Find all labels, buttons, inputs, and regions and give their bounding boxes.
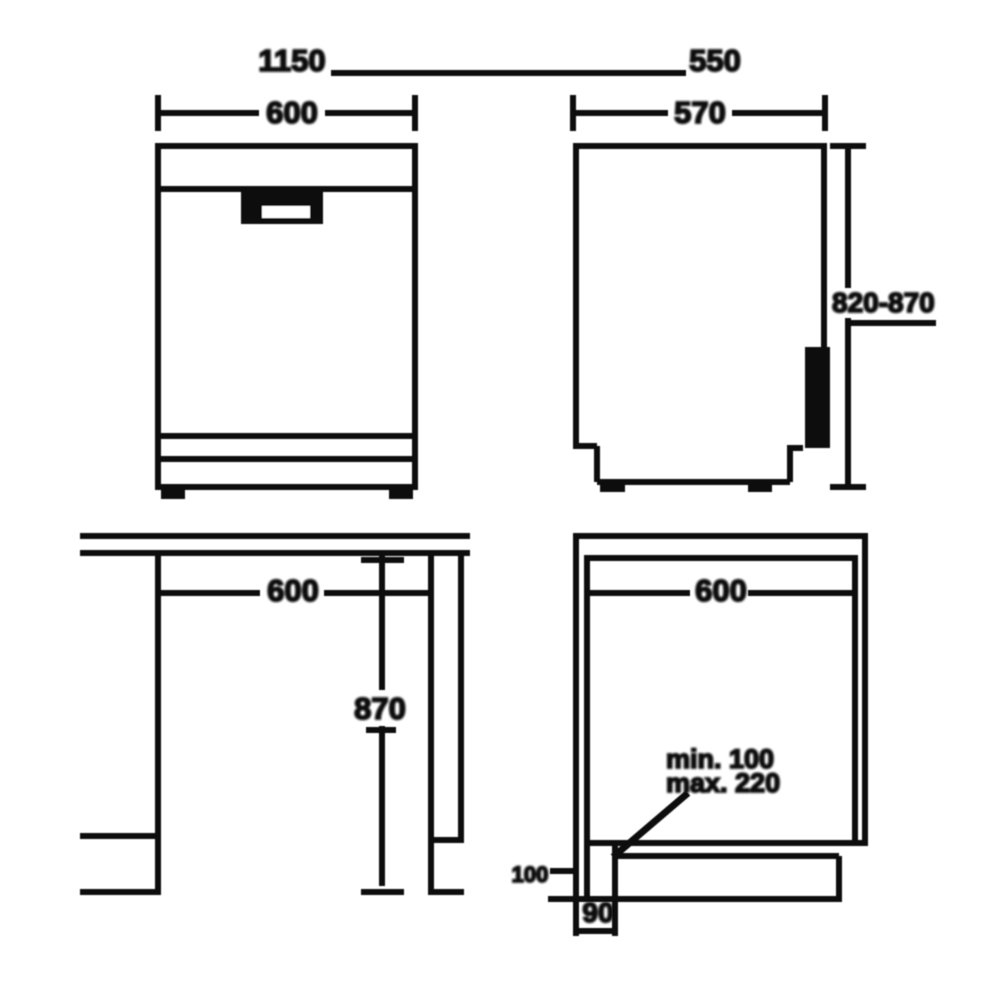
svg-text:600: 600 (267, 573, 319, 608)
svg-text:600: 600 (266, 95, 318, 130)
svg-text:90: 90 (582, 897, 613, 928)
svg-text:570: 570 (674, 95, 726, 130)
svg-text:max. 220: max. 220 (666, 768, 780, 798)
svg-text:600: 600 (695, 573, 747, 608)
svg-text:870: 870 (354, 691, 406, 726)
svg-text:550: 550 (689, 43, 741, 78)
svg-text:820-870: 820-870 (832, 287, 935, 318)
svg-text:1150: 1150 (258, 43, 325, 78)
svg-text:100: 100 (512, 862, 549, 887)
